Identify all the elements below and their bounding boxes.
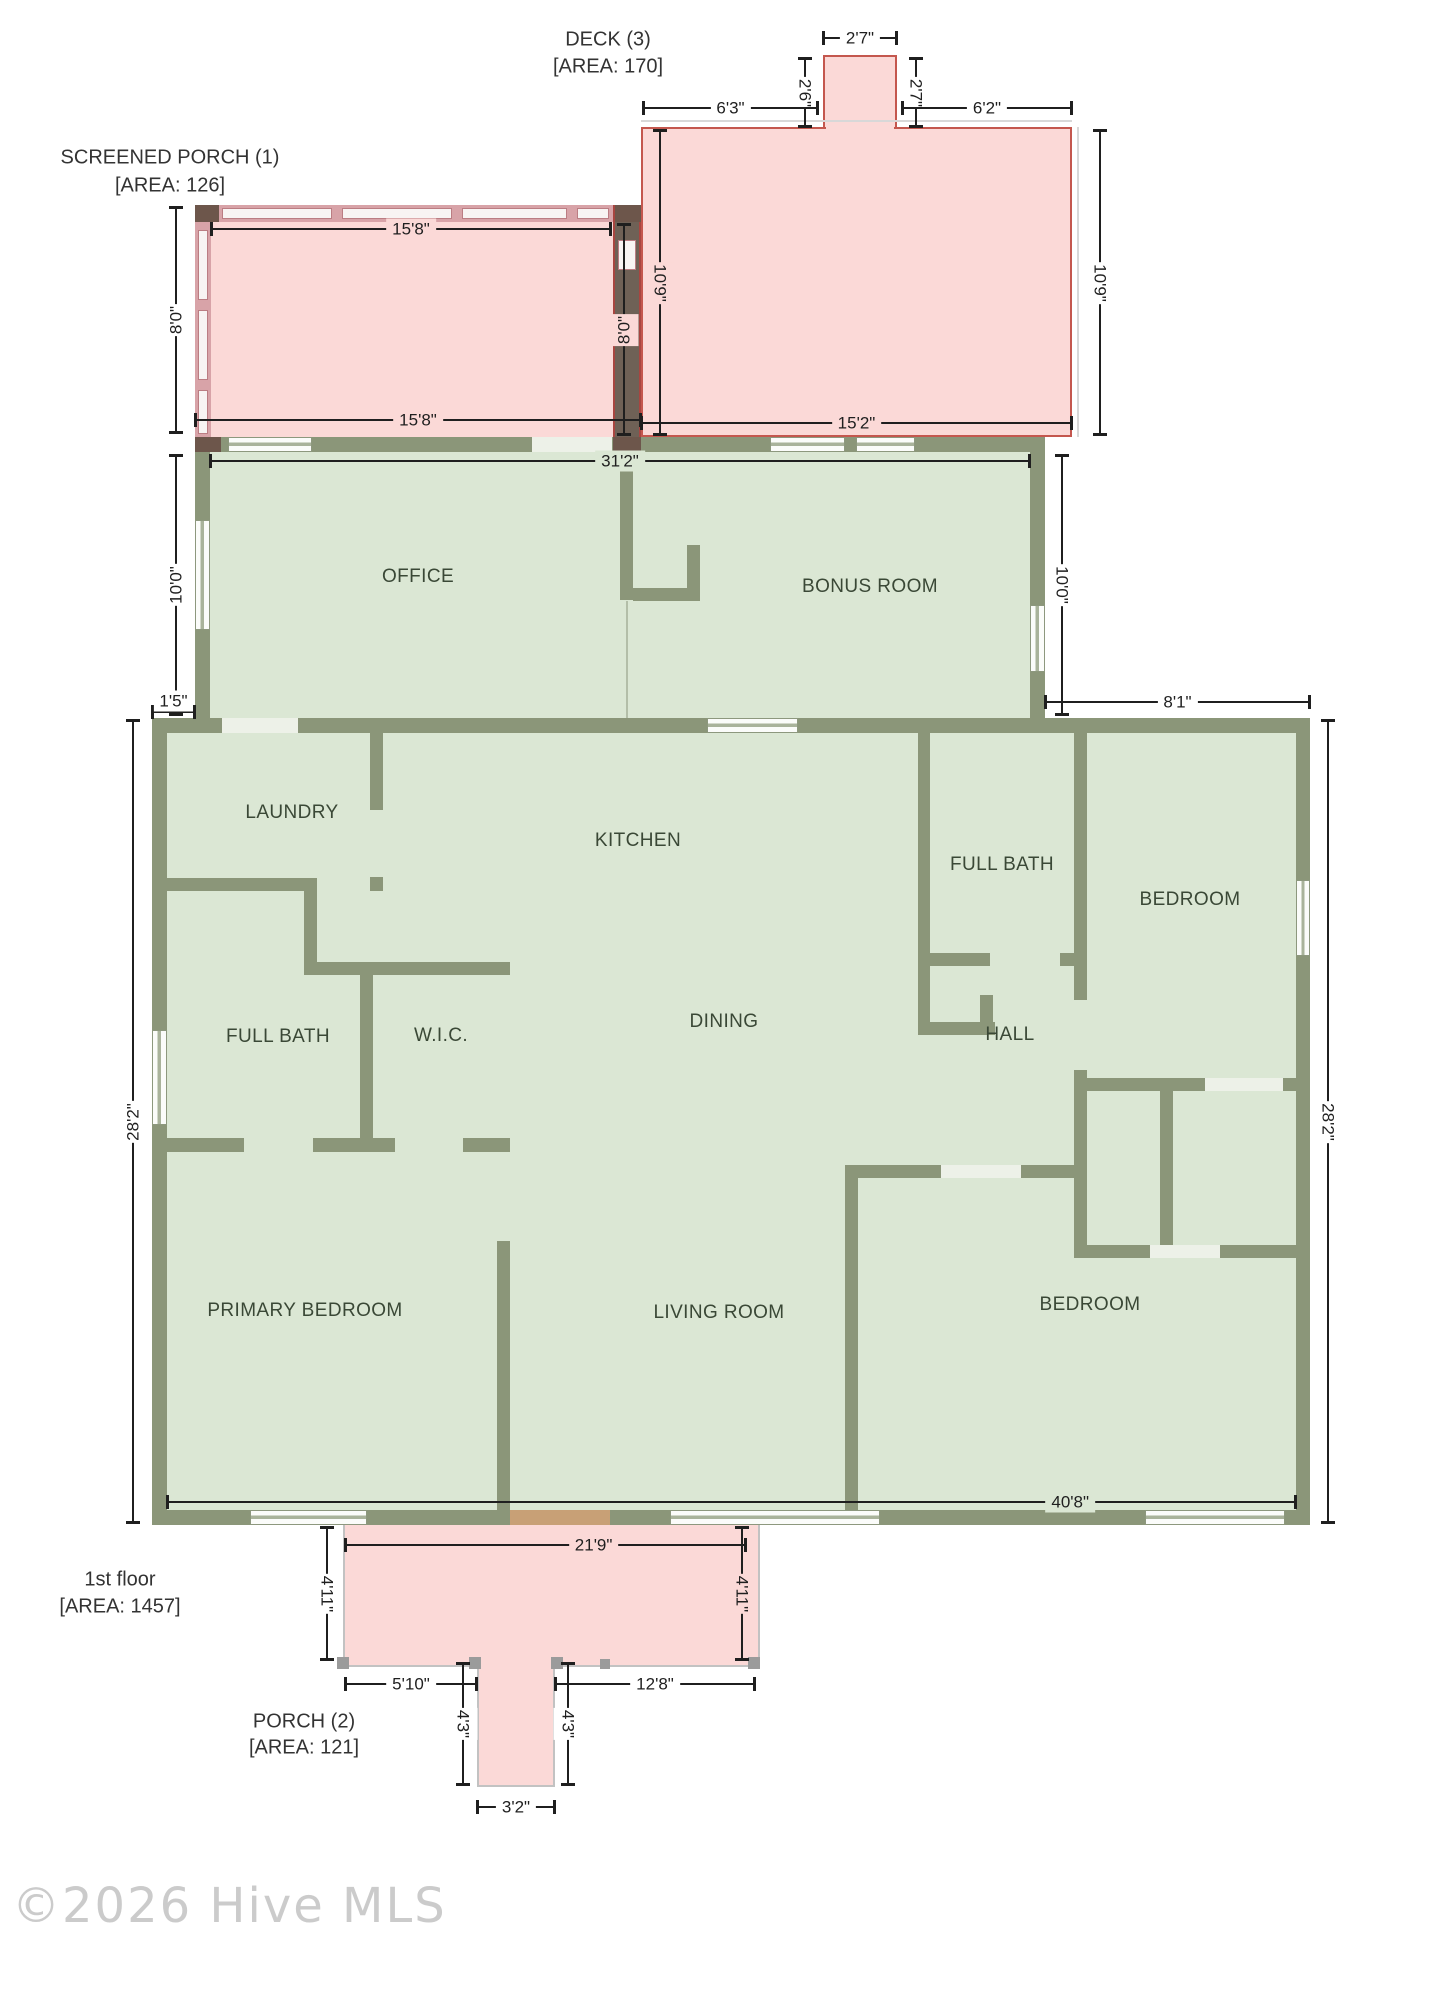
porch-corner-post <box>195 205 219 222</box>
room-label-living: LIVING ROOM <box>653 1302 784 1324</box>
wall-office-bonus-divider <box>620 452 633 600</box>
dim-label: 4'11" <box>728 1573 757 1613</box>
window-bonus-right <box>1030 605 1045 672</box>
wall-primary-right <box>497 1241 510 1510</box>
dim-label: 8'1" <box>1157 692 1197 713</box>
dim-label: 15'8" <box>386 219 436 240</box>
porch-joint <box>480 1661 552 1670</box>
screened-porch-area <box>211 222 641 437</box>
dim-deck-top-right: 6'2" <box>902 107 1072 109</box>
room-label-wic: W.I.C. <box>414 1025 468 1047</box>
dim-main-width: 40'8" <box>167 1501 1296 1503</box>
screened-porch-area-label: [AREA: 126] <box>115 175 225 198</box>
screen-panel <box>222 208 332 219</box>
porch-post <box>469 1657 481 1669</box>
wall-primary-top <box>152 1138 244 1152</box>
porch-corner-post <box>195 437 221 452</box>
dim-label: 2'7" <box>902 76 931 108</box>
dim-label: 4'3" <box>554 1708 583 1740</box>
dim-label: 12'8" <box>630 1674 680 1695</box>
wall-closet-mid <box>1160 1078 1173 1258</box>
wall-primary-top <box>313 1138 395 1152</box>
dim-label: 5'10" <box>386 1674 436 1695</box>
room-label-laundry: LAUNDRY <box>245 802 338 824</box>
wall-bath2-bottom <box>930 953 990 966</box>
dim-label: 6'3" <box>710 98 750 119</box>
dim-label: 10'0" <box>1048 564 1077 606</box>
wall-laundry-right <box>370 733 383 810</box>
dim-label: 2'7" <box>840 28 880 49</box>
window <box>856 437 915 452</box>
window-bottom <box>670 1510 880 1525</box>
porch-post <box>337 1657 349 1669</box>
room-label-bonus: BONUS ROOM <box>802 576 938 598</box>
dim-label: 10'0" <box>162 564 191 606</box>
room-label-hall: HALL <box>985 1024 1034 1046</box>
porch-corner-post <box>615 205 641 222</box>
dim-deck-bump-width: 2'7" <box>823 37 897 39</box>
wall-laundry-right <box>370 877 383 891</box>
screen-panel <box>618 240 636 270</box>
dim-label: 28'2" <box>1314 1101 1343 1143</box>
dim-deck-side-right: 10'9" <box>1099 130 1101 435</box>
dim-label: 10'9" <box>646 262 675 304</box>
dim-steps-height-left: 4'3" <box>462 1663 464 1785</box>
dim-label: 21'9" <box>569 1535 619 1556</box>
dim-sporch-top: 15'8" <box>211 228 611 230</box>
wall-dining-hall-divider <box>918 733 930 1035</box>
dim-label: 40'8" <box>1045 1492 1095 1513</box>
dim-sporch-bottom: 15'8" <box>195 419 641 421</box>
porch-post <box>748 1657 760 1669</box>
porch-area <box>343 1525 760 1667</box>
deck-name: DECK (3) <box>565 29 651 52</box>
opening-office-laundry <box>222 718 298 733</box>
dim-label: 31'2" <box>595 451 645 472</box>
dim-deck-top-left: 6'3" <box>643 107 818 109</box>
dim-steps-width: 3'2" <box>477 1806 555 1808</box>
floor-plan: 2'7" 2'6" 2'7" 6'3" 6'2" 10'9" 10'9" 15'… <box>0 0 1433 2000</box>
dim-porch-height-left: 4'11" <box>326 1527 328 1660</box>
screen-panel <box>462 208 567 219</box>
deck-extension-line <box>641 120 1072 122</box>
window-interior <box>707 718 798 733</box>
lower-section-interior <box>152 718 1310 1525</box>
dim-label: 4'11" <box>313 1573 342 1613</box>
watermark: ©2026 Hive MLS <box>12 1878 447 1934</box>
dim-sporch-side: 8'0" <box>175 207 177 433</box>
dim-deck-bump-right: 2'7" <box>915 58 917 127</box>
dim-main-height-right: 28'2" <box>1327 720 1329 1523</box>
dim-deck-bump-left: 2'6" <box>804 58 806 127</box>
window-bottom <box>250 1510 367 1525</box>
porch-name: PORCH (2) <box>253 1711 355 1734</box>
dim-label: 8'0" <box>162 304 191 336</box>
dim-label: 3'2" <box>496 1797 536 1818</box>
room-label-primary-bedroom: PRIMARY BEDROOM <box>207 1300 402 1322</box>
wall-closet-left <box>1074 1078 1087 1258</box>
wall-bath1-step <box>304 878 317 975</box>
window <box>770 437 845 452</box>
dim-office-height: 10'0" <box>175 455 177 715</box>
deck-extension-line <box>1077 127 1079 437</box>
screen-panel <box>342 208 452 219</box>
first-floor-area-label: [AREA: 1457] <box>59 1596 180 1619</box>
room-label-office: OFFICE <box>382 566 454 588</box>
dim-label: 8'0" <box>610 313 639 345</box>
front-door <box>510 1510 610 1525</box>
wall-bonus-right <box>1030 437 1045 733</box>
deck-area-label: [AREA: 170] <box>553 56 663 79</box>
first-floor-name: 1st floor <box>84 1569 155 1592</box>
deck-area <box>641 127 1072 437</box>
dim-porch-bottom-left: 5'10" <box>345 1683 477 1685</box>
wall-right <box>1296 718 1310 1525</box>
wall-bedroom1-left <box>1074 733 1087 1000</box>
dim-right-extension: 8'1" <box>1045 701 1310 703</box>
window-bath1-left <box>152 1030 167 1125</box>
room-boundary-line <box>626 601 628 718</box>
porch-post <box>600 1659 610 1669</box>
wall-wic-top <box>317 962 510 975</box>
window-bottom <box>1145 1510 1285 1525</box>
dim-label: 1'5" <box>153 691 193 712</box>
dim-deck-side-left: 10'9" <box>659 130 661 435</box>
screen-panel <box>577 208 609 219</box>
wall-wic-left <box>360 975 373 1152</box>
wall-laundry-bottom <box>167 878 317 891</box>
screen-panel <box>198 310 208 380</box>
dim-steps-height-right: 4'3" <box>567 1663 569 1785</box>
dim-porch-width: 21'9" <box>345 1544 746 1546</box>
deck-bump <box>823 55 897 129</box>
dim-divider-height: 8'0" <box>623 224 625 435</box>
room-label-bedroom-2: BEDROOM <box>1040 1294 1141 1316</box>
window <box>228 437 312 452</box>
wall-bath2-bottom-stub <box>1060 953 1074 966</box>
wall-bedroom1-left <box>1074 1070 1087 1078</box>
room-label-bedroom-1: BEDROOM <box>1140 889 1241 911</box>
dim-label: 15'2" <box>832 413 882 434</box>
screened-porch-name: SCREENED PORCH (1) <box>61 147 280 170</box>
window-office-left <box>195 520 210 630</box>
deck-joint <box>826 123 894 131</box>
screen-panel <box>198 390 208 434</box>
dim-deck-bottom: 15'2" <box>641 422 1072 424</box>
door-closet-lower <box>1150 1245 1220 1258</box>
porch-area-label: [AREA: 121] <box>249 1737 359 1760</box>
dim-porch-height-right: 4'11" <box>741 1527 743 1660</box>
dim-label: 10'9" <box>1086 262 1115 304</box>
dim-bonus-height: 10'0" <box>1061 455 1063 715</box>
room-label-kitchen: KITCHEN <box>595 830 681 852</box>
screen-panel <box>198 230 208 300</box>
wall-living-bedroom2-divider <box>845 1165 858 1510</box>
dim-main-height-left: 28'2" <box>132 720 134 1523</box>
door-closet-upper <box>1205 1078 1283 1091</box>
room-label-full-bath-2: FULL BATH <box>950 854 1054 876</box>
window-bedroom1-right <box>1296 880 1310 956</box>
dim-label: 28'2" <box>119 1101 148 1143</box>
room-label-dining: DINING <box>690 1011 759 1033</box>
dim-porch-bottom-right: 12'8" <box>555 1683 755 1685</box>
door-bedroom2 <box>941 1165 1021 1178</box>
dim-label: 15'8" <box>393 410 443 431</box>
dim-label: 6'2" <box>967 98 1007 119</box>
dim-upper-width: 31'2" <box>210 460 1030 462</box>
wall-office-stub <box>687 545 700 601</box>
room-label-full-bath-1: FULL BATH <box>226 1026 330 1048</box>
dim-left-offset: 1'5" <box>152 711 195 713</box>
wall-primary-top <box>463 1138 510 1152</box>
porch-steps <box>477 1667 555 1787</box>
dim-label: 4'3" <box>449 1708 478 1740</box>
